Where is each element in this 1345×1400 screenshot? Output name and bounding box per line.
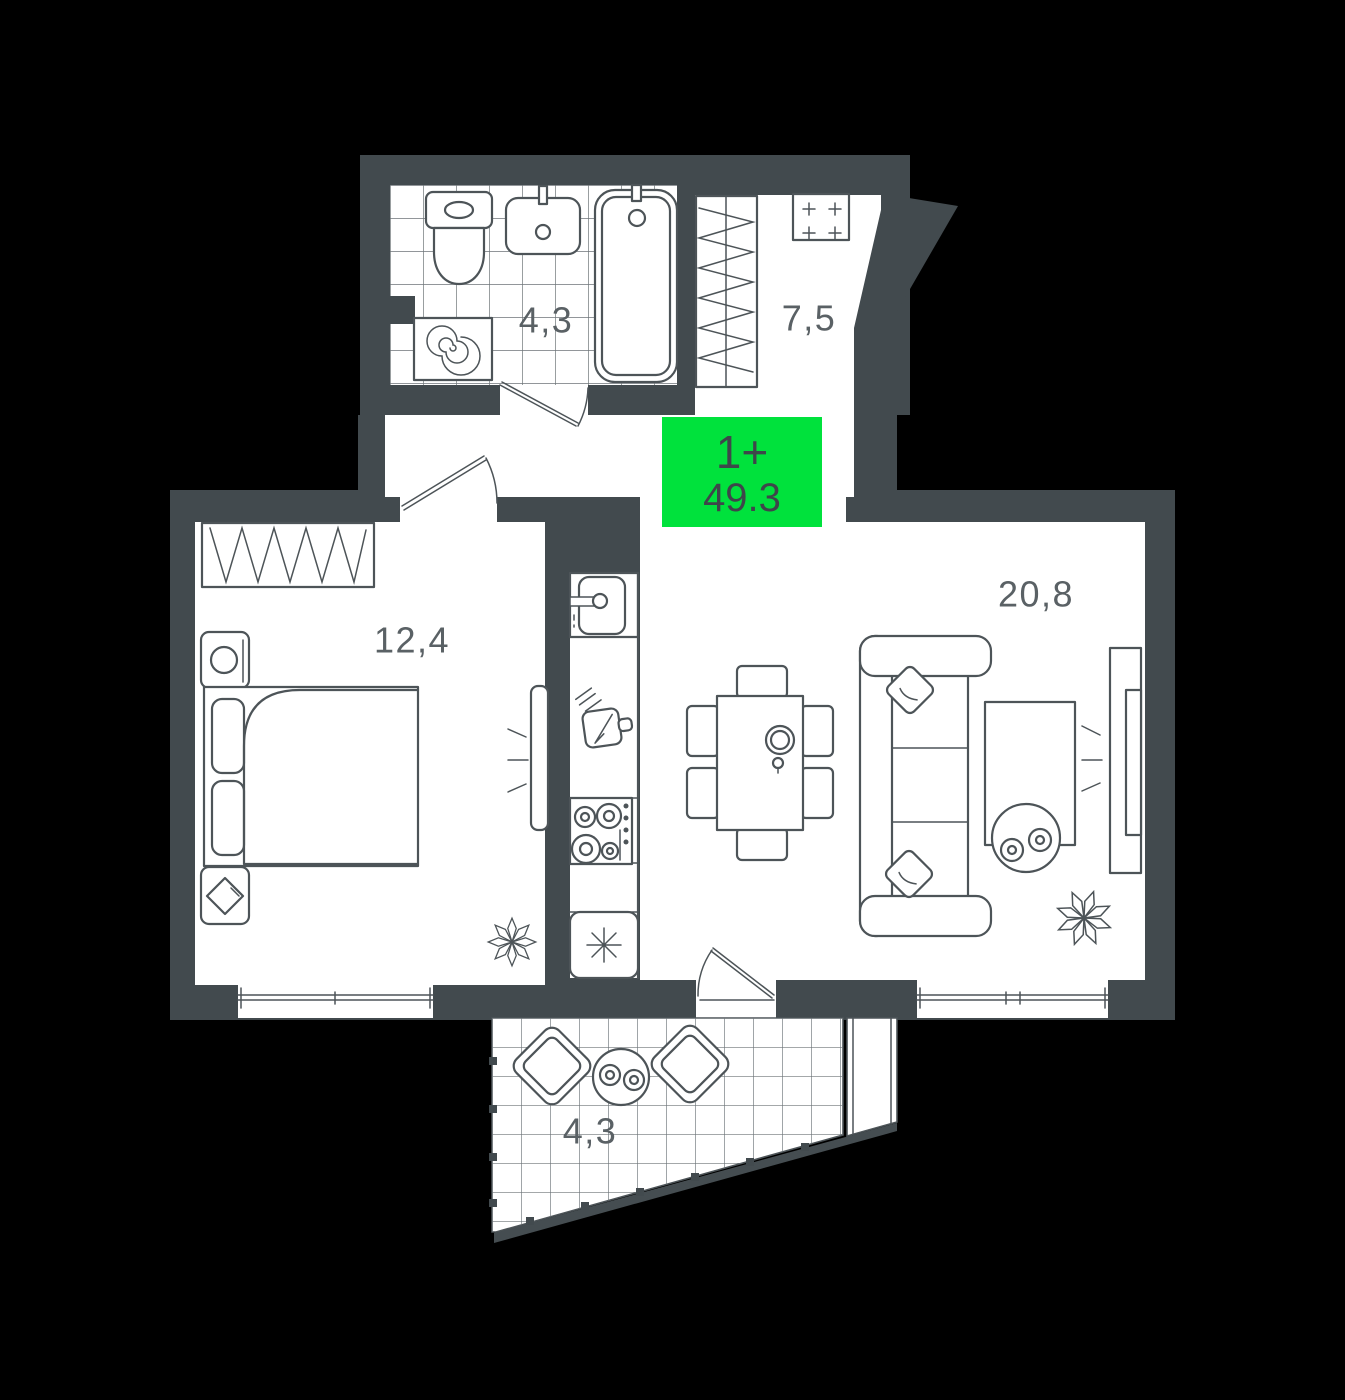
floor-plan: 4,3 7,5 12,4 20,8 4,3 1+ 49.3 (0, 0, 1345, 1400)
hallway-area-label: 7,5 (782, 298, 837, 339)
corridor-floor (385, 415, 695, 497)
fridge-icon (570, 912, 638, 978)
bedroom-area-label: 12,4 (374, 620, 450, 661)
stove-icon (570, 798, 632, 864)
floor-plan-drawing: 4,3 7,5 12,4 20,8 4,3 1+ 49.3 (0, 0, 1345, 1400)
washing-machine-icon (414, 318, 492, 380)
bedroom-door-opening (400, 497, 497, 522)
nightstand (201, 867, 249, 924)
living-room-area-label: 20,8 (998, 574, 1074, 615)
unit-rooms-label: 1+ (716, 426, 768, 478)
dining-table-icon (717, 696, 803, 830)
balcony-door-opening (696, 980, 776, 1018)
coffee-table-icon (992, 804, 1060, 872)
unit-area-value: 49.3 (703, 476, 781, 520)
balcony (489, 1018, 897, 1243)
bedroom-window (238, 980, 433, 1018)
unit-badge: 1+ 49.3 (662, 417, 822, 527)
balcony-table (593, 1049, 649, 1105)
balcony-area-label: 4,3 (563, 1111, 618, 1152)
bathroom-area-label: 4,3 (519, 300, 574, 341)
bathroom-door-opening (500, 385, 588, 417)
bathroom-pilaster (390, 296, 415, 324)
balcony-glazing (847, 1018, 897, 1136)
bathtub-icon (595, 185, 677, 382)
nightstand (201, 632, 249, 688)
bed-icon (204, 687, 418, 866)
living-room-window (917, 980, 1108, 1018)
